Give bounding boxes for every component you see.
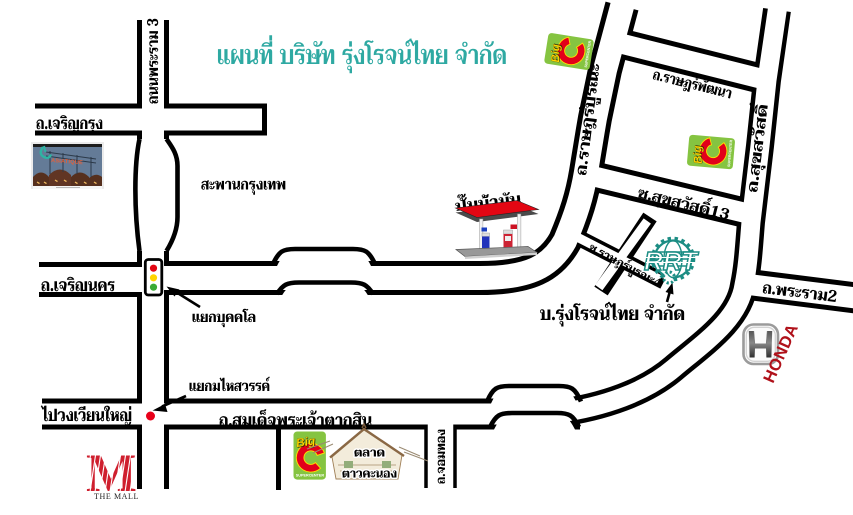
- svg-text:THE MALL: THE MALL: [94, 492, 139, 501]
- svg-text:RRT: RRT: [644, 246, 699, 276]
